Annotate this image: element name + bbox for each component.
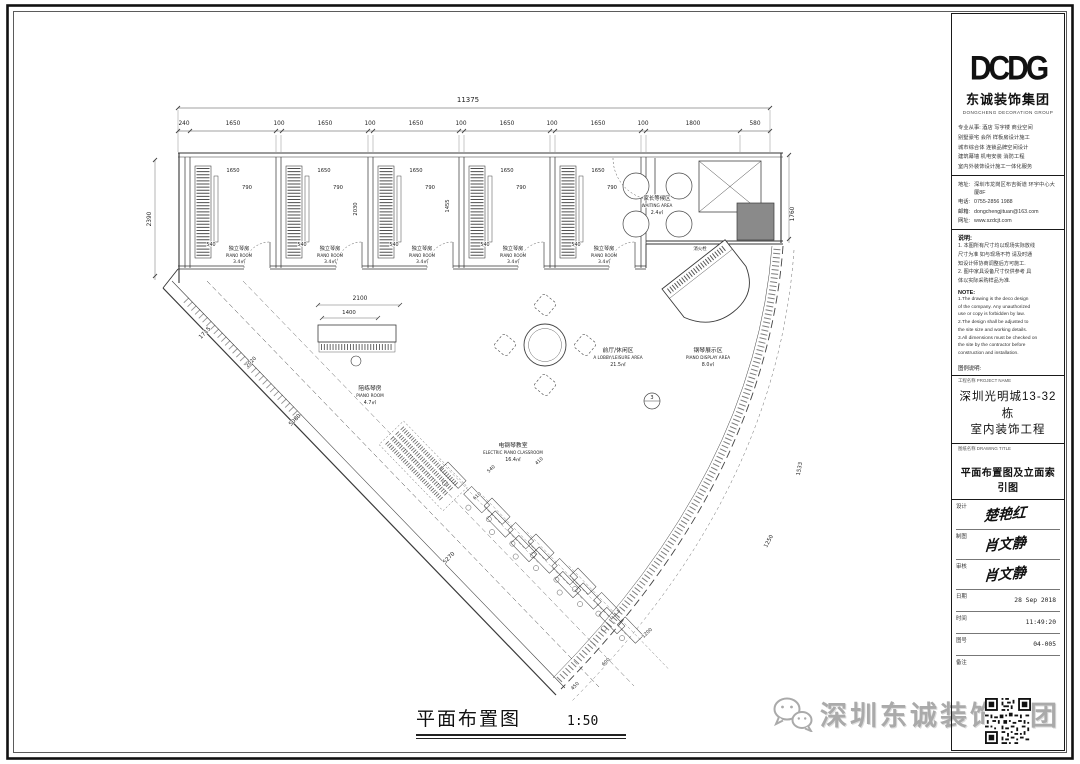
field-value: www.szdcjt.com — [974, 217, 1058, 225]
qr-wrap — [952, 698, 1064, 750]
meta-rows: 日期28 Sep 2018时间11:49:20图号04-005备注 — [952, 590, 1064, 672]
signature-row: 审核肖文静 — [956, 560, 1060, 590]
plan-label: 1760 — [790, 206, 796, 221]
field-label: 设计 — [956, 500, 974, 510]
plan-label: 电钢琴教室 — [499, 441, 528, 449]
notes-section: 说明: 1. 本图所有尺寸均以现场实际放线尺寸为准 如与现场不符 请及时通知设计… — [952, 229, 1064, 375]
company-services: 专业从事: 酒店 写字楼 商业空间别墅豪宅 会所 样板房设计施工城市综合体 连锁… — [958, 124, 1058, 173]
plan-label: 1800 — [686, 121, 701, 127]
plan-label: 1200 — [641, 627, 654, 640]
field-label: 电话: — [958, 198, 974, 206]
plan-label: 1650 — [500, 121, 515, 127]
company-name-en: DONGCHENG DECORATION GROUP — [958, 110, 1058, 115]
plan-label: A LOBBY/LEISURE AREA — [593, 355, 642, 360]
note-line: 知设计师协商调整后方可施工. — [958, 260, 1058, 269]
plan-label: 前厅/休闲区 — [603, 346, 634, 354]
plan-label: PIANO ROOM — [226, 253, 253, 258]
field-value: 0755-2856 1988 — [974, 198, 1058, 206]
note-line: use or copy is forbidden by law. — [958, 311, 1058, 319]
drawing-title: 平面布置图及立面索引图 — [958, 464, 1058, 494]
plan-labels: 1137524016501001650100165010016501001650… — [147, 96, 804, 692]
sheet-frame — [8, 6, 1073, 759]
project-name-line2: 室内装饰工程 — [958, 422, 1058, 439]
curved-facade — [553, 246, 794, 701]
company-name-cn: 东诚装饰集团 — [958, 89, 1058, 108]
plan-label: 家长等候区 — [644, 194, 672, 202]
plan-label: 790 — [425, 185, 435, 191]
grand-piano — [662, 240, 763, 338]
field-label: 审核 — [956, 560, 974, 570]
plan-label: 1650 — [318, 121, 333, 127]
plan-label: 独立琴房 — [229, 244, 250, 252]
classroom-rows — [379, 421, 672, 679]
plan-label: 4.7㎡ — [364, 399, 377, 406]
plan-label: 100 — [364, 121, 375, 127]
plan-label: 2.4㎡ — [651, 209, 664, 216]
note-line: of the company. Any unauthorized — [958, 304, 1058, 312]
service-line: 室内外装饰设计施工一体化服务 — [958, 163, 1058, 173]
lobby-table — [493, 293, 597, 397]
plan-label: 450 — [570, 681, 581, 692]
note-line: 1. 本图所有尺寸均以现场实际放线 — [958, 242, 1058, 251]
plan-label: 2100 — [353, 296, 368, 302]
caption-underline-thin — [416, 738, 626, 739]
practice-piano — [318, 325, 396, 366]
field-value: 肖文静 — [984, 562, 1027, 586]
note-line: 1.The drawing is the deco design — [958, 296, 1058, 304]
plan-label: 410 — [534, 456, 545, 466]
caption-title: 平面布置图 — [416, 704, 521, 731]
service-line: 建筑幕墙 机电安装 消防工程 — [958, 153, 1058, 163]
plan-label: 独立琴房 — [412, 244, 433, 252]
plan-label: 1650 — [317, 168, 330, 174]
note-line: the site by the contractor before — [958, 342, 1058, 350]
plan-label: 消火栓 — [693, 245, 707, 252]
field-value: 04-005 — [974, 641, 1060, 648]
note-line: 3.All dimensions must be checked on — [958, 335, 1058, 343]
plan-label: 600 — [601, 657, 612, 668]
waiting-area — [613, 158, 774, 240]
plan-label: 21.5㎡ — [610, 361, 626, 368]
plan-label: 独立琴房 — [503, 244, 524, 252]
plan-label: 1533 — [796, 462, 804, 477]
plan-label: 2020 — [245, 356, 258, 369]
plan-label: PIANO DISPLAY AREA — [686, 355, 730, 360]
field-label: 邮箱: — [958, 208, 974, 216]
plan-label: 1650 — [500, 168, 513, 174]
plan-label: 580 — [749, 121, 760, 127]
company-contact: 地址:深圳市龙岗区布吉街道 环宇中心大厦8F电话:0755-2856 1988邮… — [952, 175, 1064, 229]
drawing-label: 图纸名称 DRAWING TITLE — [958, 446, 1058, 452]
note-line: 2. 图中家具设备尺寸仅供参考 具 — [958, 268, 1058, 277]
plan-label: 790 — [333, 185, 343, 191]
plan-label: 1455 — [445, 199, 451, 212]
signature-rows: 设计楚艳红制图肖文静审核肖文静 — [952, 499, 1064, 590]
meta-row: 日期28 Sep 2018 — [956, 590, 1060, 612]
plan-label: 8.0㎡ — [702, 361, 715, 368]
plan-label: 1650 — [409, 168, 422, 174]
field-label: 备注 — [956, 656, 974, 666]
classroom-desk-row — [472, 492, 586, 609]
signature-row: 制图肖文静 — [956, 530, 1060, 560]
plan-label: 790 — [242, 185, 252, 191]
plan-label: PIANO ROOM — [317, 253, 344, 258]
contact-row: 地址:深圳市龙岗区布吉街道 环宇中心大厦8F — [958, 181, 1058, 197]
plan-label: 540 — [297, 242, 306, 248]
titleblock: DCDG 东诚装饰集团 DONGCHENG DECORATION GROUP 专… — [951, 13, 1065, 751]
plan-label: 陪练琴房 — [358, 384, 381, 392]
plan-label: PIANO ROOM — [409, 253, 436, 258]
field-label: 日期 — [956, 590, 974, 600]
plan-label: 1650 — [591, 168, 604, 174]
plan-label: 1650 — [409, 121, 424, 127]
legend-title: 图例说明: — [958, 364, 1058, 372]
notes-en: 1.The drawing is the deco designof the c… — [958, 296, 1058, 358]
plan-label: 100 — [455, 121, 466, 127]
project-label: 工程名称 PROJECT NAME — [958, 378, 1058, 384]
plan-label: 540 — [206, 242, 215, 248]
plan-label: 1650 — [591, 121, 606, 127]
plan-label: PIANO ROOM — [591, 253, 618, 258]
plan-label: 540 — [486, 464, 497, 474]
service-line: 专业从事: 酒店 写字楼 商业空间 — [958, 124, 1058, 134]
caption-underline-thick — [416, 734, 626, 736]
drawing-sheet: 1137524016501001650100165010016501001650… — [0, 0, 1080, 764]
plan-label: 1250 — [763, 534, 775, 549]
plan-label: 790 — [607, 185, 617, 191]
project-name-line1: 深圳光明城13-32栋 — [958, 389, 1058, 422]
meta-row: 时间11:49:20 — [956, 612, 1060, 634]
floor-plan-canvas: 1137524016501001650100165010016501001650… — [0, 0, 1080, 764]
meta-row: 备注 — [956, 656, 1060, 672]
plan-label: 790 — [516, 185, 526, 191]
field-label: 制图 — [956, 530, 974, 540]
keyboard-cluster — [379, 421, 467, 511]
field-value: 11:49:20 — [974, 619, 1060, 626]
plan-label: 100 — [546, 121, 557, 127]
plan-label: 独立琴房 — [320, 244, 341, 252]
field-value: 楚艳红 — [984, 502, 1027, 526]
contact-row: 网址:www.szdcjt.com — [958, 217, 1058, 225]
contact-row: 邮箱:dongchengjituan@163.com — [958, 208, 1058, 216]
note-line: 尺寸为准 如与现场不符 请及时通 — [958, 251, 1058, 260]
plan-label: 100 — [273, 121, 284, 127]
plan-label: 16.4㎡ — [505, 456, 521, 463]
field-value: 28 Sep 2018 — [974, 597, 1060, 604]
plan-label: ELECTRIC PIANO CLASSROOM — [483, 450, 543, 455]
plan-label: 2390 — [147, 211, 153, 226]
plan-label: 独立琴房 — [594, 244, 615, 252]
project-section: 工程名称 PROJECT NAME 深圳光明城13-32栋 室内装饰工程 — [952, 375, 1064, 443]
field-value: 深圳市龙岗区布吉街道 环宇中心大厦8F — [974, 181, 1058, 197]
plan-label: 1715 — [198, 326, 213, 341]
contact-row: 电话:0755-2856 1988 — [958, 198, 1058, 206]
plan-label: 11375 — [457, 96, 479, 104]
caption-scale: 1:50 — [567, 714, 598, 729]
drawing-caption: 平面布置图 1:50 — [416, 704, 626, 739]
field-value: 肖文静 — [984, 532, 1027, 556]
field-label: 图号 — [956, 634, 974, 644]
plan-label: PIANO ROOM — [500, 253, 527, 258]
plan-label: 3.4㎡ — [598, 258, 610, 265]
plan-label: 610 — [472, 491, 483, 501]
plan-label: PIANO ROOM — [356, 393, 384, 398]
wechat-icon — [772, 696, 814, 732]
plan-label: 3.4㎡ — [507, 258, 519, 265]
field-label: 网址: — [958, 217, 974, 225]
notes-title-cn: 说明: — [958, 233, 1058, 242]
meta-row: 图号04-005 — [956, 634, 1060, 656]
drawing-title-section: 图纸名称 DRAWING TITLE 平面布置图及立面索引图 — [952, 443, 1064, 499]
note-line: construction and installation. — [958, 350, 1058, 358]
plan-label: 3 — [650, 395, 653, 401]
plan-label: 1650 — [226, 121, 241, 127]
signature-row: 设计楚艳红 — [956, 500, 1060, 530]
qr-code — [985, 698, 1031, 744]
company-header: DCDG 东诚装饰集团 DONGCHENG DECORATION GROUP 专… — [952, 14, 1064, 175]
field-value: dongchengjituan@163.com — [974, 208, 1058, 216]
plan-label: 540 — [389, 242, 398, 248]
service-line: 别墅豪宅 会所 样板房设计施工 — [958, 134, 1058, 144]
shaft-column — [737, 203, 774, 240]
plan-label: 540 — [480, 242, 489, 248]
field-label: 地址: — [958, 181, 974, 197]
note-line: the site size and working details. — [958, 327, 1058, 335]
plan-label: WAITING AREA — [642, 203, 673, 208]
plan-label: 5270 — [442, 551, 457, 566]
notes-cn: 1. 本图所有尺寸均以现场实际放线尺寸为准 如与现场不符 请及时通知设计师协商调… — [958, 242, 1058, 286]
plan-label: 钢琴展示区 — [694, 346, 723, 354]
note-line: 体以实际采购样品为准. — [958, 277, 1058, 286]
classroom-desk-row — [558, 562, 672, 679]
plan-label: 540 — [571, 242, 580, 248]
plan-label: 1650 — [226, 168, 239, 174]
note-line: 2.The design shall be adjusted to — [958, 319, 1058, 327]
plan-label: 2030 — [353, 202, 359, 215]
field-label: 时间 — [956, 612, 974, 622]
company-logo: DCDG — [958, 52, 1058, 87]
plan-label: 1400 — [342, 310, 356, 316]
plan-label: 240 — [178, 121, 189, 127]
plan-label: 3.4㎡ — [416, 258, 428, 265]
plan-label: 3.4㎡ — [233, 258, 245, 265]
service-line: 城市综合体 连锁品牌空间设计 — [958, 144, 1058, 154]
plan-label: 3.4㎡ — [324, 258, 336, 265]
plan-label: 100 — [637, 121, 648, 127]
